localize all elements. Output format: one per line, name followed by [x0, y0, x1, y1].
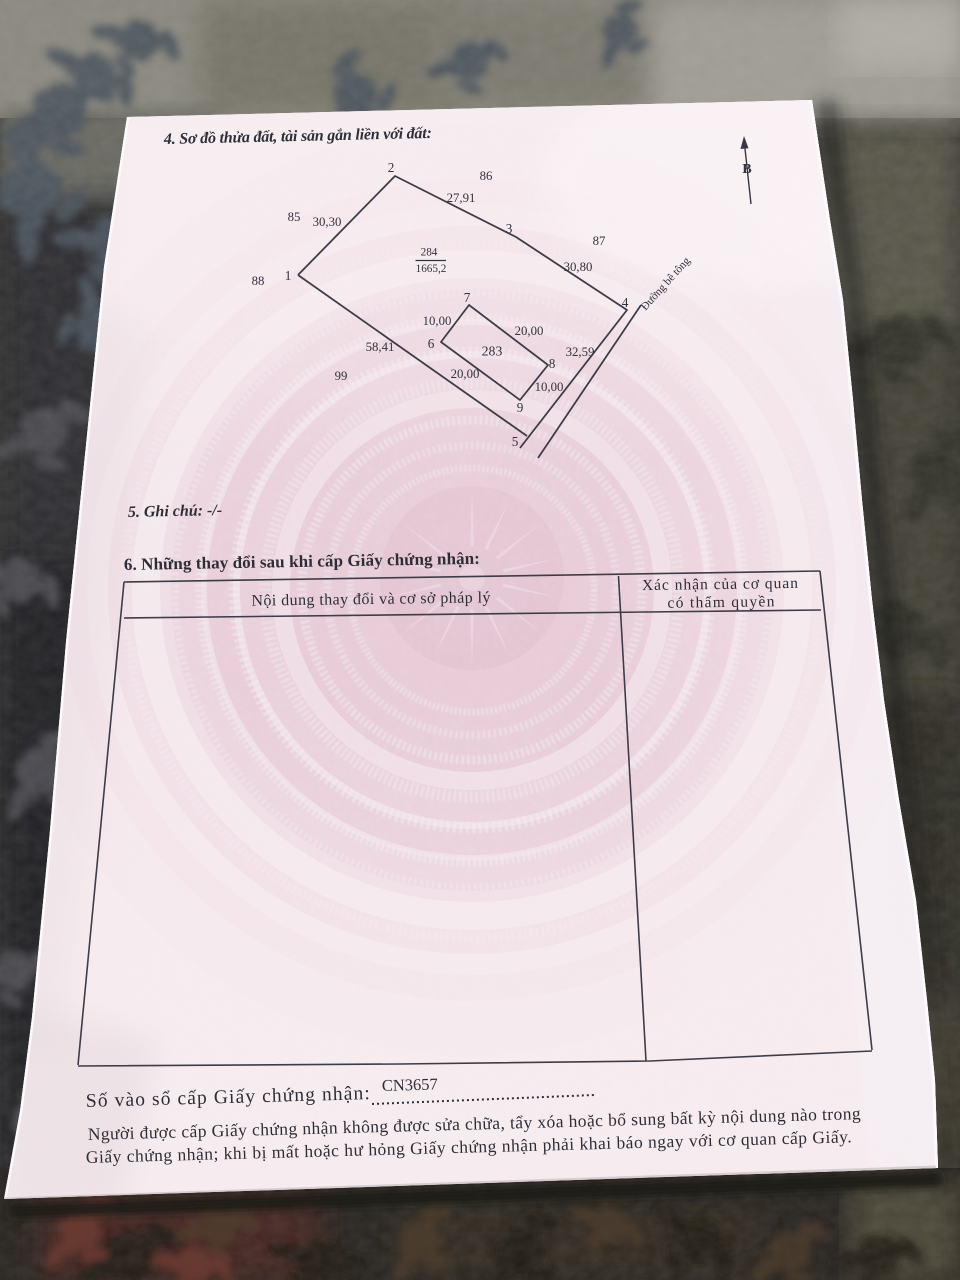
svg-text:2: 2: [388, 160, 395, 175]
svg-text:32,59: 32,59: [566, 345, 595, 359]
svg-text:30,30: 30,30: [313, 215, 342, 229]
svg-text:1: 1: [285, 268, 292, 283]
svg-text:20,00: 20,00: [515, 324, 544, 338]
svg-text:27,91: 27,91: [447, 191, 476, 205]
svg-text:87: 87: [593, 234, 606, 248]
svg-text:Nội dung thay đổi và cơ sở phá: Nội dung thay đổi và cơ sở pháp lý: [251, 589, 490, 609]
svg-text:3: 3: [506, 221, 513, 236]
svg-text:6: 6: [428, 336, 435, 351]
svg-text:Xác nhận của cơ quan: Xác nhận của cơ quan: [642, 575, 798, 594]
svg-text:9: 9: [517, 400, 524, 415]
svg-text:88: 88: [252, 274, 265, 288]
svg-text:7: 7: [464, 290, 471, 305]
svg-text:5: 5: [512, 434, 519, 449]
svg-text:10,00: 10,00: [535, 380, 564, 394]
svg-text:86: 86: [480, 169, 493, 183]
svg-text:99: 99: [335, 369, 348, 383]
svg-text:30,80: 30,80: [564, 260, 593, 274]
svg-text:1665,2: 1665,2: [416, 263, 447, 275]
svg-text:10,00: 10,00: [423, 314, 452, 328]
svg-text:20,00: 20,00: [451, 367, 480, 381]
svg-text:284: 284: [421, 247, 438, 259]
svg-text:5. Ghi chú: -/-: 5. Ghi chú: -/-: [128, 502, 223, 521]
svg-text:283: 283: [482, 344, 503, 359]
svg-text:CN3657: CN3657: [382, 1074, 438, 1095]
svg-text:58,41: 58,41: [366, 340, 395, 354]
svg-text:8: 8: [549, 356, 556, 371]
svg-text:B: B: [742, 162, 751, 177]
svg-text:4: 4: [622, 295, 629, 310]
svg-text:85: 85: [288, 210, 301, 224]
